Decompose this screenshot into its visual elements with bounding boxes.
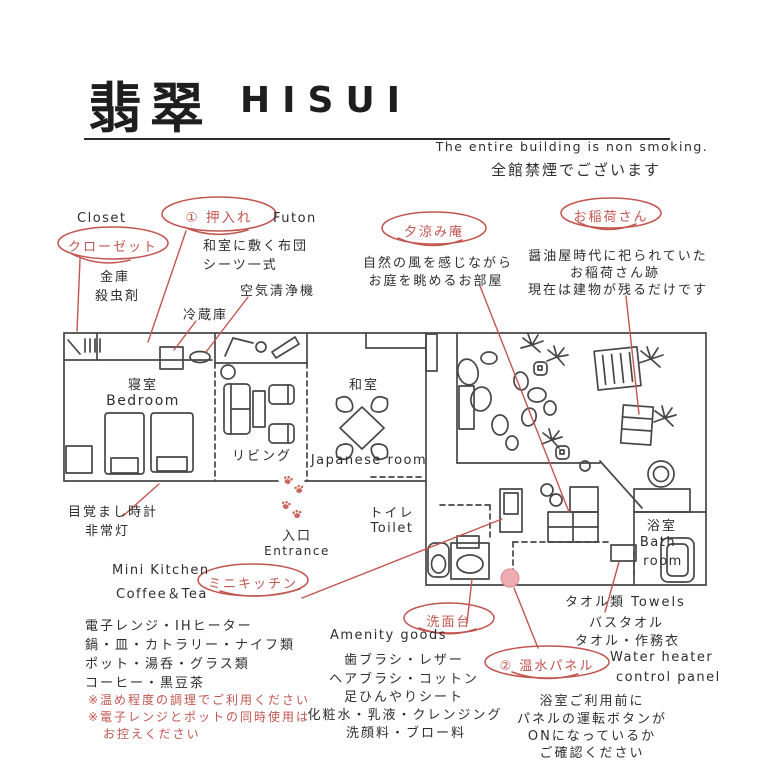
amenity-item-1: 歯ブラシ・レザー xyxy=(344,649,464,668)
futon-label: Futon xyxy=(273,211,317,226)
minikitchen-item-3: ポット・湯呑・グラス類 xyxy=(85,653,250,672)
minikitchen-item-1: 電子レンジ・IHヒーター xyxy=(85,615,253,634)
closet-item-insecticide: 殺虫剤 xyxy=(95,285,140,304)
closet-item-safe: 金庫 xyxy=(100,266,130,285)
room-entrance-en: Entrance xyxy=(264,544,330,558)
amenity-item-2: ヘアブラシ・コットン xyxy=(329,668,479,687)
washstand-oval-label: 洗面台 xyxy=(426,611,471,630)
yusuzumi-oval-label: 夕涼み庵 xyxy=(404,221,464,240)
waterheater-en-1: Water heater xyxy=(610,650,713,665)
fridge-label: 冷蔵庫 xyxy=(183,304,228,323)
minikitchen-warning-2: ※電子レンジとポットの同時使用は xyxy=(88,708,310,725)
nonsmoking-ja: 全館禁煙でございます xyxy=(491,159,661,180)
room-bedroom-ja: 寝室 xyxy=(128,374,158,393)
waterheater-oval-label: ② 温水パネル xyxy=(500,655,595,674)
paw-prints-icon xyxy=(281,475,304,519)
emergency-light-label: 非常灯 xyxy=(85,520,130,539)
minikitchen-warning-3: お控えください xyxy=(103,725,201,742)
room-toilet-en: Toilet xyxy=(370,521,413,536)
room-living-ja: リビング xyxy=(232,445,292,464)
amenity-item-5: 洗顔料・ブロー料 xyxy=(346,722,466,741)
room-bath-ja: 浴室 xyxy=(647,515,677,534)
minikitchen-en1: Mini Kitchen xyxy=(112,563,210,578)
yusuzumi-desc-1: 自然の風を感じながら xyxy=(363,252,513,271)
towels-item-2: タオル・作務衣 xyxy=(575,630,680,649)
room-bedroom-en: Bedroom xyxy=(106,393,180,409)
room-entrance-ja: 入口 xyxy=(282,525,312,544)
water-heater-panel-marker xyxy=(501,569,519,587)
amenity-goods-label: Amenity goods xyxy=(330,628,447,643)
waterheater-desc-1: 浴室ご利用前に xyxy=(539,690,644,709)
air-purifier-label: 空気清浄機 xyxy=(240,280,315,299)
minikitchen-item-2: 鍋・皿・カトラリー・ナイフ類 xyxy=(85,634,295,653)
room-japanese-en: Japanese room xyxy=(311,453,427,468)
page-title-romaji: HISUI xyxy=(240,80,412,121)
minikitchen-warning-1: ※温め程度の調理でご利用ください xyxy=(88,691,310,708)
room-bath-en1: Bath xyxy=(640,535,676,550)
closet-label-en: Closet xyxy=(77,211,127,226)
closet-oval-label: クローゼット xyxy=(68,236,158,255)
nonsmoking-en: The entire building is non smoking. xyxy=(436,139,709,154)
garden-bench xyxy=(621,405,654,445)
towels-item-1: バスタオル xyxy=(589,612,664,631)
oinari-oval-label: お稲荷さん xyxy=(573,206,648,225)
room-bath-en2: room xyxy=(643,554,683,569)
amenity-item-4: 化粧水・乳液・クレンジング xyxy=(307,704,502,723)
oshiire-desc-1: 和室に敷く布団 xyxy=(203,235,308,254)
minikitchen-item-4: コーヒー・黒豆茶 xyxy=(85,672,205,691)
towels-title: タオル類 Towels xyxy=(565,591,686,610)
yusuzumi-desc-2: お庭を眺めるお部屋 xyxy=(368,270,503,289)
page-title-kanji: 翡翠 xyxy=(88,64,212,143)
waterheater-en-2: control panel xyxy=(616,670,721,685)
amenity-item-3: 足ひんやりシート xyxy=(344,686,464,705)
oinari-desc-3: 現在は建物が残るだけです xyxy=(528,279,708,298)
minikitchen-oval-label: ミニキッチン xyxy=(208,573,298,592)
room-japanese-ja: 和室 xyxy=(349,374,379,393)
oshiire-oval-label: ① 押入れ xyxy=(186,206,253,226)
alarm-clock-label: 目覚まし時計 xyxy=(68,501,158,520)
room-guide-page: 翡翠 HISUI The entire building is non smok… xyxy=(0,0,770,770)
waterheater-desc-4: ご確認ください xyxy=(539,742,644,761)
oshiire-desc-2: シーツ一式 xyxy=(203,254,278,273)
room-toilet-ja: トイレ xyxy=(369,502,414,521)
minikitchen-en2: Coffee＆Tea xyxy=(116,583,208,602)
